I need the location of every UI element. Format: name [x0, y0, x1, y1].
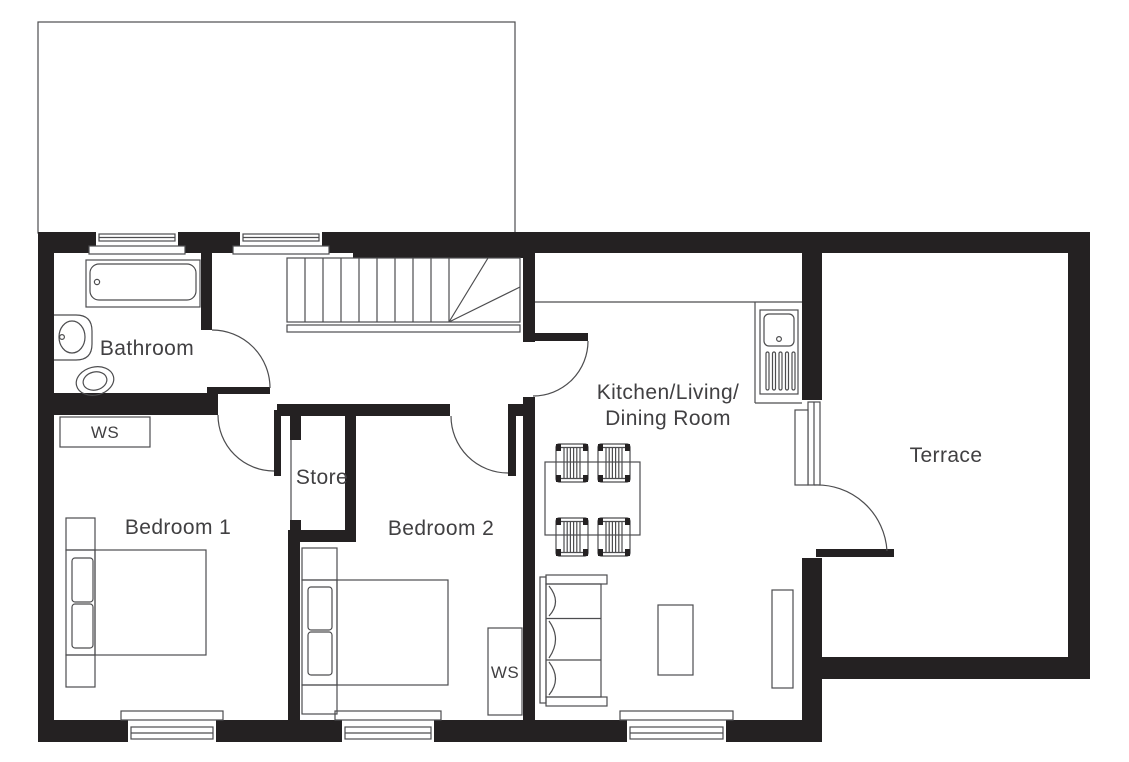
nightstand: [66, 518, 95, 550]
sideboard: [772, 590, 793, 688]
bedroom2-label: Bedroom 2: [388, 517, 494, 540]
mattress: [95, 550, 206, 655]
door-bedroom2: [451, 408, 516, 476]
coffee-table: [658, 605, 693, 675]
kitchen-label-line2: Dining Room: [605, 407, 731, 430]
bed-1: [66, 518, 206, 687]
dining-chair: [598, 518, 630, 556]
window-terrace-side: [795, 400, 823, 487]
sofa: [540, 575, 607, 706]
nightstand: [66, 655, 95, 687]
door-bedroom1: [218, 410, 281, 476]
kitchen-sink: [760, 310, 798, 394]
dining-set: [545, 444, 640, 556]
bedroom1-label: Bedroom 1: [125, 516, 231, 539]
terrace-label: Terrace: [910, 444, 983, 467]
exterior-walls: [38, 232, 1090, 742]
stair-handrail: [287, 325, 520, 332]
ws-label-bedroom1: WS: [91, 423, 119, 442]
pillow: [308, 587, 332, 630]
window-bedroom1: [121, 711, 223, 743]
bathroom-label: Bathroom: [100, 337, 194, 360]
dining-chair: [556, 444, 588, 482]
kitchen-label-line1: Kitchen/Living/: [597, 381, 740, 404]
pillow: [72, 604, 93, 648]
window-bedroom2: [335, 711, 441, 743]
store-label: Store: [296, 466, 348, 489]
floor-plan: Bathroom Store Bedroom 1 Bedroom 2 Kitch…: [0, 0, 1129, 762]
upper-void-outline: [38, 22, 515, 233]
window-bathroom: [89, 231, 185, 254]
pillow: [72, 558, 93, 602]
dining-chair: [556, 518, 588, 556]
mattress: [337, 580, 448, 685]
floor-plan-page: Bathroom Store Bedroom 1 Bedroom 2 Kitch…: [0, 0, 1129, 762]
window-stairs: [233, 231, 329, 254]
bed-2: [302, 548, 448, 714]
dining-chair: [598, 444, 630, 482]
nightstand: [302, 548, 337, 580]
bathroom-basin: [54, 315, 92, 360]
door-bathroom: [207, 330, 270, 394]
ws-label-bedroom2: WS: [491, 663, 519, 682]
door-terrace: [814, 485, 894, 557]
nightstand: [302, 685, 337, 714]
bathtub: [86, 260, 200, 307]
window-kitchen: [620, 711, 733, 743]
door-kitchen: [532, 333, 588, 396]
pillow: [308, 632, 332, 675]
staircase: [287, 258, 520, 332]
